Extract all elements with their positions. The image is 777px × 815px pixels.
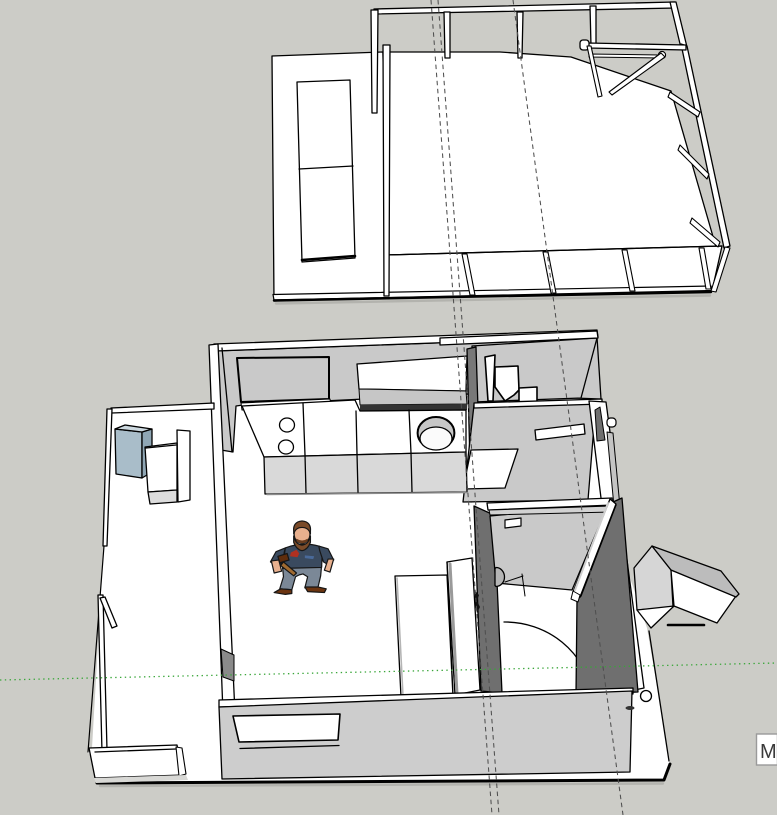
svg-text:M: M [760,741,777,763]
